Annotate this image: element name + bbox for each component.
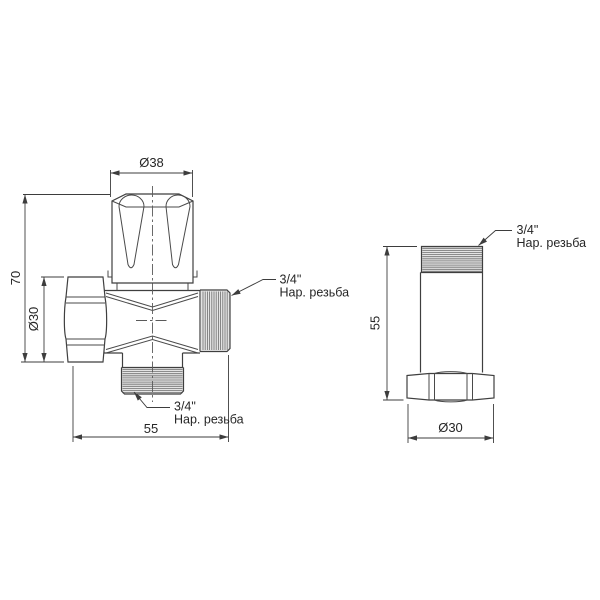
front-view: Ø38 70 Ø30 55 xyxy=(8,155,349,442)
dim-label-30-side: Ø30 xyxy=(438,420,463,435)
tail-nut xyxy=(407,372,494,402)
dim-label-55-front: 55 xyxy=(144,421,158,436)
dim-handle-diameter: Ø38 xyxy=(111,155,193,197)
technical-drawing-canvas: Ø38 70 Ø30 55 xyxy=(0,0,600,600)
valve-body xyxy=(104,291,200,368)
dim-nut-diameter-30-side: Ø30 xyxy=(408,404,494,443)
dim-label-70: 70 xyxy=(8,271,23,285)
union-nut xyxy=(64,277,106,362)
dim-label-55-side: 55 xyxy=(368,316,383,330)
dim-label-30-front: Ø30 xyxy=(26,307,41,332)
valve-drawing: Ø38 70 Ø30 55 xyxy=(0,0,600,600)
callout-top-thread-label: Нар. резьба xyxy=(517,236,587,250)
dim-label-38: Ø38 xyxy=(139,155,164,170)
callout-side-thread: 3/4" Нар. резьба xyxy=(232,273,350,300)
callout-top-thread: 3/4" Нар. резьба xyxy=(479,223,587,250)
callout-bottom-thread-label: Нар. резьба xyxy=(174,413,244,427)
dim-nut-diameter-30: Ø30 xyxy=(26,277,64,362)
callout-bottom-thread-size: 3/4" xyxy=(174,400,196,414)
callout-side-thread-label: Нар. резьба xyxy=(280,286,350,300)
callout-side-thread-size: 3/4" xyxy=(280,273,302,287)
tail-thread xyxy=(422,247,483,273)
side-view: 55 Ø30 3/4" Нар. резьба xyxy=(368,223,587,443)
side-thread xyxy=(200,290,230,352)
callout-top-thread-size: 3/4" xyxy=(517,223,539,237)
tail-body xyxy=(421,273,483,373)
